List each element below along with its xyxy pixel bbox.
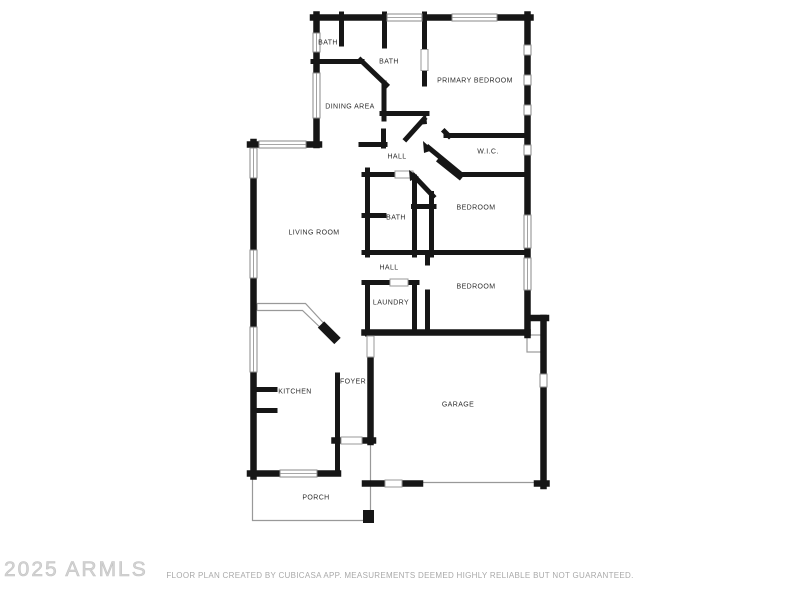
room-label-living-room: LIVING ROOM [288,230,339,237]
room-label-bedroom-2: BEDROOM [457,284,496,291]
floor-plan: BATH BATH PRIMARY BEDROOM DINING AREA HA… [0,0,800,600]
room-label-porch: PORCH [302,495,329,502]
room-label-hall-1: HALL [387,154,406,161]
room-label-wic: W.I.C. [477,149,498,156]
room-label-dining-area: DINING AREA [325,104,375,111]
room-label-bath-2: BATH [379,59,399,66]
disclaimer-text: FLOOR PLAN CREATED BY CUBICASA APP. MEAS… [0,571,800,580]
kitchen-counter-outline [257,304,330,334]
room-label-kitchen: KITCHEN [278,389,312,396]
room-label-primary-bedroom: PRIMARY BEDROOM [437,78,513,85]
porch-post [363,510,374,523]
room-label-laundry: LAUNDRY [373,300,409,307]
room-label-bath-1: BATH [318,40,338,47]
room-label-bath-3: BATH [386,215,406,222]
room-label-bedroom-1: BEDROOM [457,205,496,212]
room-label-garage: GARAGE [442,402,474,409]
porch-outline [253,445,371,521]
bay-corner-wall [321,325,338,342]
room-label-foyer: FOYER [340,379,366,386]
room-label-hall-2: HALL [379,265,398,272]
